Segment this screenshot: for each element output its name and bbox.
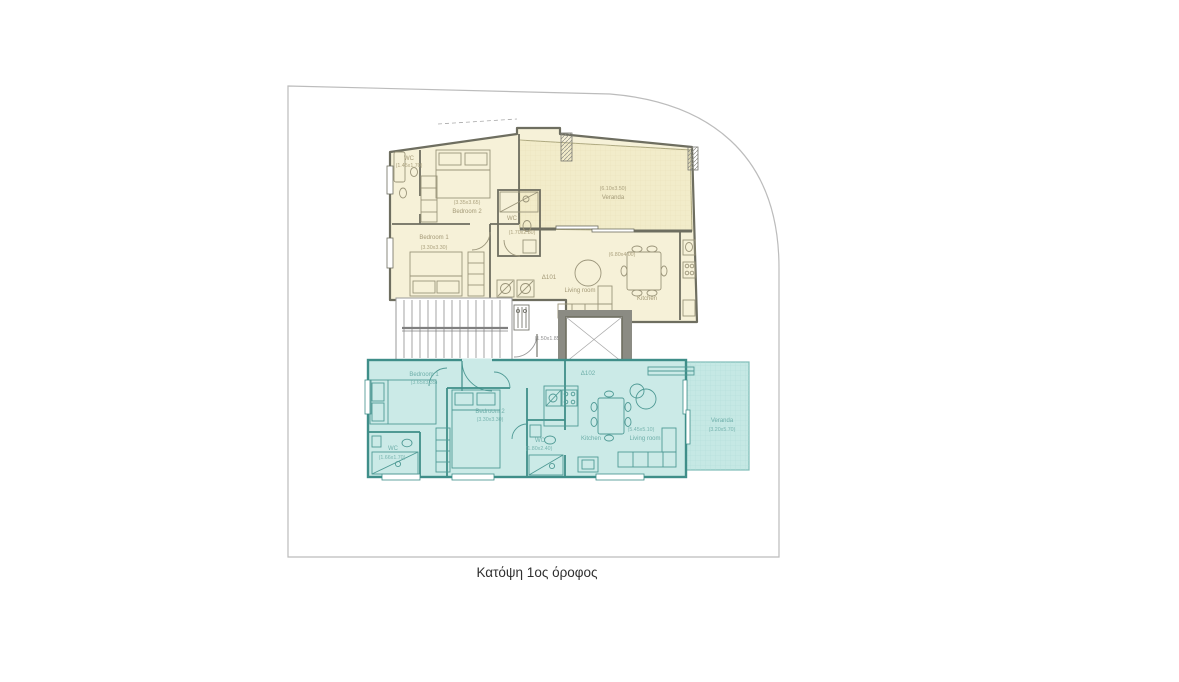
a101-bedroom1-label: Bedroom 1 xyxy=(419,235,449,241)
a101-unit-id: Δ101 xyxy=(542,274,557,281)
a102-bedroom1-dims: (3.65x3.35) xyxy=(411,380,438,386)
apartment-a102: Veranda (3.20x5.70) xyxy=(365,360,749,480)
a102-living-dims: (5.45x5.10) xyxy=(628,427,655,433)
a102-veranda-slider-2 xyxy=(686,410,690,444)
core-wall-right xyxy=(622,317,632,362)
a102-bedroom1-label: Bedroom 1 xyxy=(409,372,439,378)
a102-window-3 xyxy=(596,474,644,480)
lobby-dims: (1.50x1.85) xyxy=(535,336,562,342)
a101-living-label: Living room xyxy=(564,288,595,294)
a102-unit-id: Δ102 xyxy=(581,370,596,377)
a102-window-1 xyxy=(382,474,420,480)
a102-wc-left-dims: (1.66x1.70) xyxy=(379,455,406,461)
a101-veranda-dims: (6.10x3.50) xyxy=(600,186,627,192)
a102-kitchen-label: Kitchen xyxy=(581,436,601,442)
floor-plan-page: (6.10x3.50) Veranda xyxy=(0,0,1179,682)
a102-bedroom2-dims: (3.30x3.30) xyxy=(477,417,504,423)
a101-bedroom1-dims: (3.30x3.30) xyxy=(421,245,448,251)
a101-veranda: (6.10x3.50) Veranda xyxy=(519,140,692,232)
a101-bedroom2-label: Bedroom 2 xyxy=(452,209,482,215)
a101-wc-top-dims: (1.45x1.70) xyxy=(396,163,423,169)
a101-window-2 xyxy=(387,238,393,268)
a101-veranda-slider-2 xyxy=(592,229,634,232)
a102-wc-mid-label: WC xyxy=(535,438,546,444)
a102-bedroom2-label: Bedroom 2 xyxy=(475,409,505,415)
a102-veranda-dims: (3.20x5.70) xyxy=(709,427,736,433)
a102-living-label: Living room xyxy=(629,436,660,442)
a102-veranda-slider-1 xyxy=(683,380,687,414)
core-wall-top xyxy=(558,310,632,317)
a101-column-hatch-2 xyxy=(688,147,698,170)
core-wall-left xyxy=(558,317,566,362)
a102-veranda: Veranda (3.20x5.70) xyxy=(686,362,749,470)
a101-column-hatch-1 xyxy=(561,133,572,161)
a101-kitchen-label: Kitchen xyxy=(637,296,657,302)
a101-veranda-label: Veranda xyxy=(602,195,625,201)
a101-window-1 xyxy=(387,166,393,194)
floor-plan-drawing: (6.10x3.50) Veranda xyxy=(0,0,1179,682)
a102-wc-mid-dims: (1.80x2.40) xyxy=(526,446,553,452)
a101-wc-top-label: WC xyxy=(404,156,415,162)
a101-wc-mid-dims: (1.70x2.80) xyxy=(509,230,536,236)
a101-wc-mid-label: WC xyxy=(507,216,518,222)
apartment-a101: (6.10x3.50) Veranda xyxy=(387,119,698,322)
a101-veranda-slider-1 xyxy=(556,226,598,229)
a101-bedroom2-dims: (3.35x3.65) xyxy=(454,200,481,206)
drawing-caption: Κατόψη 1ος όροφος xyxy=(476,565,598,580)
a101-living-kitchen-dims: (6.80x4.00) xyxy=(609,252,636,258)
a102-window-2 xyxy=(452,474,494,480)
a102-wc-left-label: WC xyxy=(388,446,399,452)
a102-veranda-label: Veranda xyxy=(711,418,734,424)
